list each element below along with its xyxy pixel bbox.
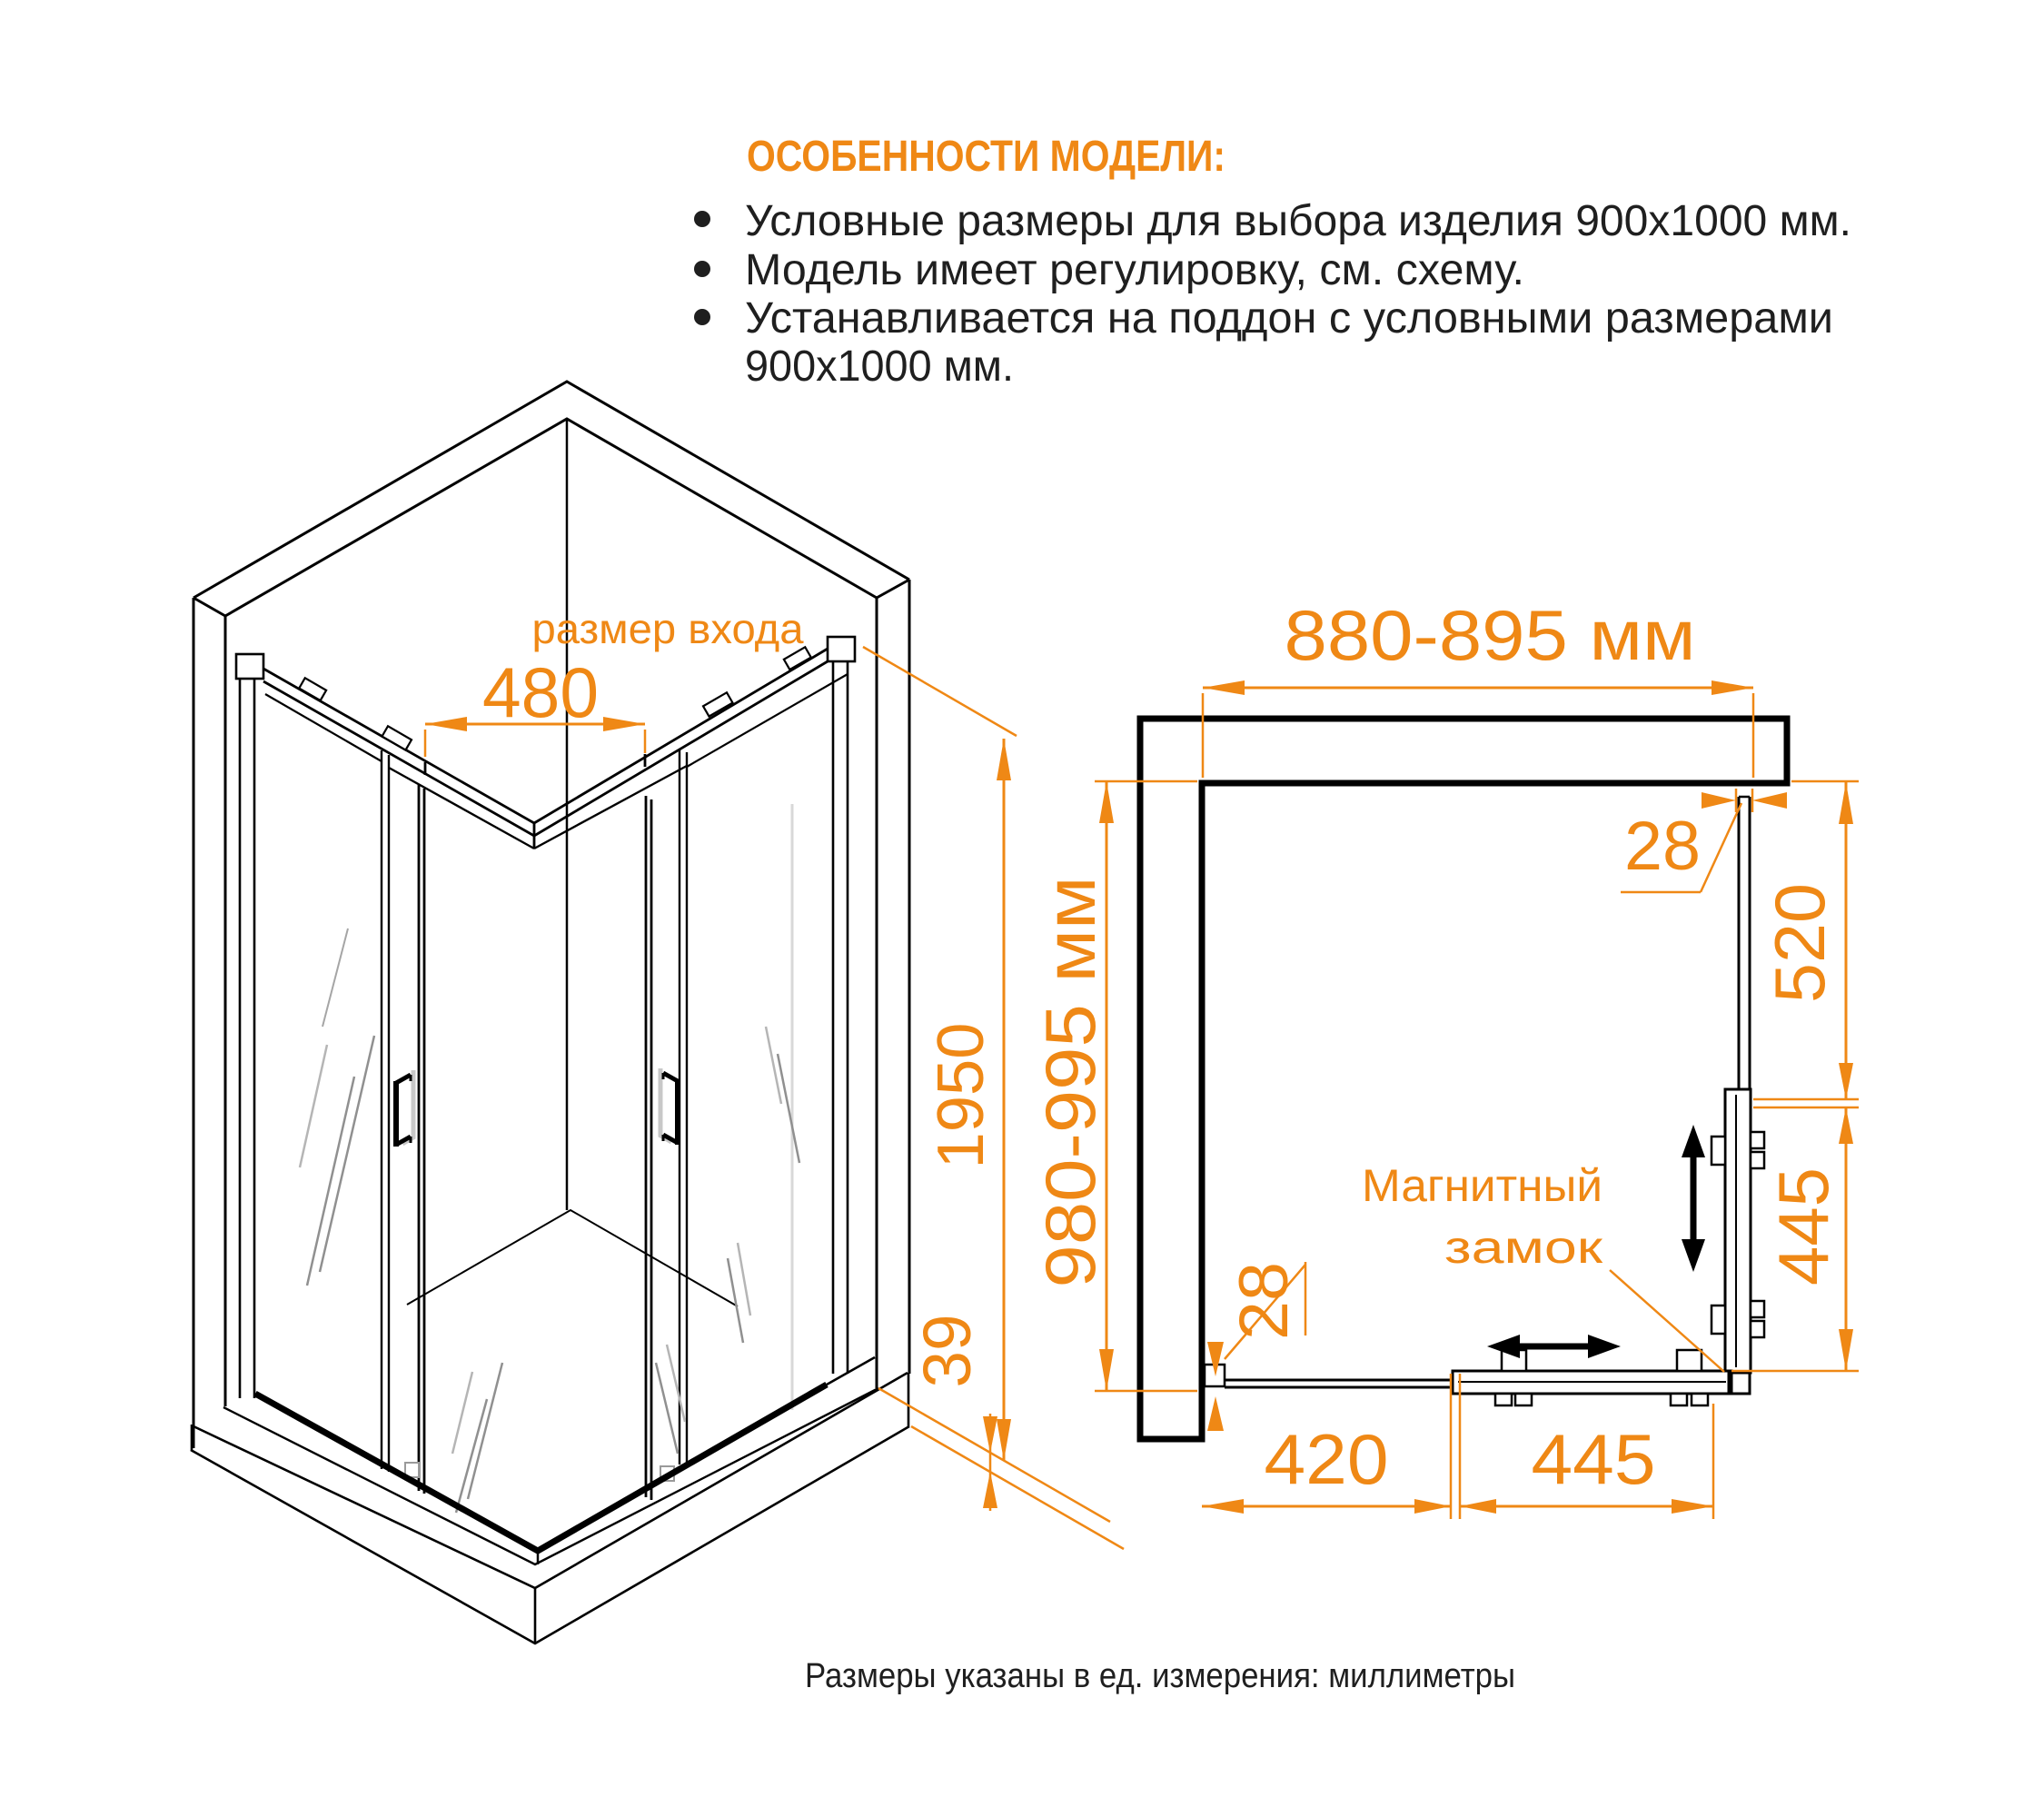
svg-text:Магнитный: Магнитный [1362, 1160, 1602, 1211]
svg-text:Размеры указаны в ед. измерени: Размеры указаны в ед. измерения: миллиме… [805, 1657, 1515, 1695]
svg-text:Условные размеры для выбора из: Условные размеры для выбора изделия 900х… [745, 197, 1851, 245]
svg-text:размер входа: размер входа [532, 605, 804, 652]
svg-text:445: 445 [1532, 1419, 1656, 1499]
svg-text:880-895 мм: 880-895 мм [1285, 595, 1696, 675]
svg-text:900х1000 мм.: 900х1000 мм. [745, 343, 1014, 391]
svg-text:1950: 1950 [925, 1023, 997, 1169]
svg-text:420: 420 [1265, 1419, 1389, 1499]
svg-text:Модель имеет регулировку, см.: Модель имеет регулировку, см. схему. [745, 246, 1524, 294]
svg-text:28: 28 [1624, 808, 1701, 885]
svg-text:445: 445 [1763, 1167, 1843, 1286]
svg-text:28: 28 [1225, 1262, 1303, 1340]
svg-text:замок: замок [1444, 1222, 1603, 1273]
svg-text:39: 39 [909, 1315, 985, 1388]
svg-text:Устанавливается на поддон с ус: Устанавливается на поддон с условными ра… [745, 294, 1833, 343]
svg-text:980-995 мм: 980-995 мм [1030, 877, 1110, 1288]
svg-text:480: 480 [482, 652, 599, 732]
svg-text:520: 520 [1760, 883, 1840, 1003]
svg-text:ОСОБЕННОСТИ МОДЕЛИ:: ОСОБЕННОСТИ МОДЕЛИ: [747, 133, 1225, 181]
